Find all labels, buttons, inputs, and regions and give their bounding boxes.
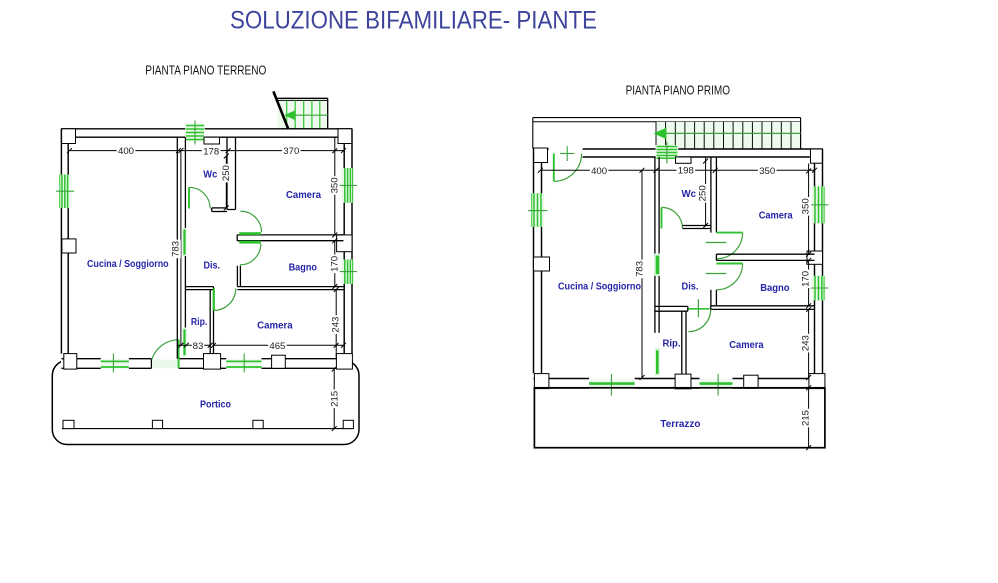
- svg-text:SOLUZIONE BIFAMILIARE- PIANTE: SOLUZIONE BIFAMILIARE- PIANTE: [230, 8, 597, 35]
- svg-text:350: 350: [801, 198, 812, 214]
- svg-text:Wc: Wc: [203, 170, 217, 181]
- svg-text:Cucina / Soggiorno: Cucina / Soggiorno: [558, 282, 641, 293]
- svg-text:400: 400: [591, 166, 607, 177]
- svg-text:83: 83: [193, 341, 204, 352]
- svg-text:250: 250: [221, 165, 232, 181]
- svg-text:243: 243: [801, 335, 812, 351]
- svg-text:Rip.: Rip.: [191, 317, 207, 328]
- svg-text:Dis.: Dis.: [204, 260, 221, 271]
- svg-text:Terrazzo: Terrazzo: [660, 419, 700, 430]
- svg-text:Camera: Camera: [286, 190, 321, 201]
- svg-text:783: 783: [170, 241, 181, 257]
- svg-text:178: 178: [203, 146, 219, 157]
- svg-text:465: 465: [269, 341, 285, 352]
- svg-text:Camera: Camera: [759, 210, 793, 221]
- svg-text:Camera: Camera: [729, 340, 763, 351]
- svg-text:170: 170: [801, 271, 812, 287]
- svg-text:PIANTA PIANO PRIMO: PIANTA PIANO PRIMO: [626, 82, 730, 97]
- svg-text:Bagno: Bagno: [289, 262, 317, 273]
- svg-text:243: 243: [331, 317, 342, 333]
- svg-text:Wc: Wc: [682, 189, 697, 200]
- svg-text:350: 350: [759, 166, 775, 177]
- svg-text:215: 215: [801, 410, 812, 426]
- svg-text:Bagno: Bagno: [760, 283, 789, 294]
- svg-text:198: 198: [678, 166, 694, 177]
- svg-text:783: 783: [635, 261, 646, 277]
- svg-text:Portico: Portico: [200, 399, 231, 410]
- svg-text:PIANTA PIANO TERRENO: PIANTA PIANO TERRENO: [145, 63, 266, 78]
- svg-text:Dis.: Dis.: [682, 281, 699, 292]
- svg-text:215: 215: [329, 391, 340, 407]
- svg-text:Rip.: Rip.: [663, 338, 681, 349]
- svg-text:Cucina / Soggiorno: Cucina / Soggiorno: [87, 259, 169, 270]
- svg-text:170: 170: [329, 256, 340, 272]
- svg-text:250: 250: [698, 185, 709, 201]
- svg-text:350: 350: [329, 177, 340, 193]
- svg-text:Camera: Camera: [257, 320, 293, 331]
- svg-text:400: 400: [118, 146, 134, 157]
- svg-text:370: 370: [283, 146, 299, 157]
